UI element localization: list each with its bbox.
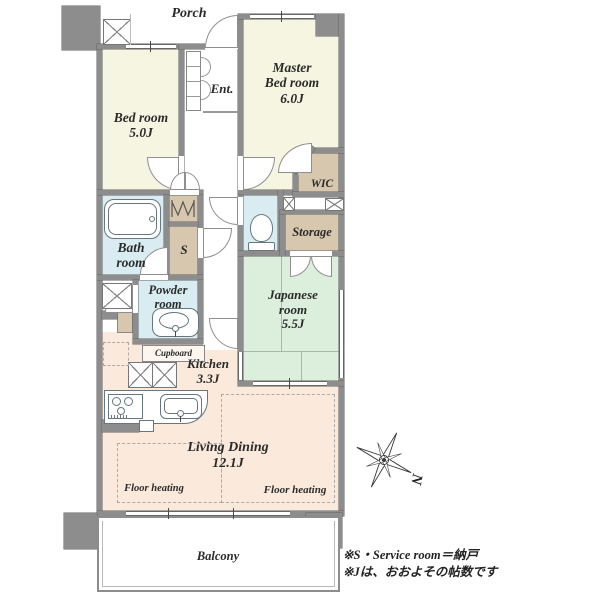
master-size: 6.0J xyxy=(250,91,334,106)
kitchen-cabinet-box xyxy=(152,362,177,388)
washing-machine-icon xyxy=(168,196,198,221)
living-dining-label: Living Dining 12.1J xyxy=(156,440,300,472)
sliding-door-japanese-bottom xyxy=(253,381,327,386)
footnote-jo-size: ※Jは、おおよその帖数です xyxy=(343,561,497,580)
japanese-room-label: Japanese room 5.5J xyxy=(250,288,336,332)
balcony-label: Balcony xyxy=(186,549,250,563)
tatami-line xyxy=(301,352,302,381)
floor-heating-right-label: Floor heating xyxy=(252,484,338,496)
laundry-door-right-arc xyxy=(185,172,200,190)
living-dining-size: 12.1J xyxy=(156,456,300,472)
bathtub-drain xyxy=(149,216,155,222)
kitchen-cabinet-box xyxy=(128,362,153,388)
doorway-powder xyxy=(133,285,138,313)
shaft-box xyxy=(102,283,132,309)
japanese-line2: room xyxy=(250,303,336,318)
window-master xyxy=(250,14,314,19)
doorway-bath xyxy=(140,275,168,280)
wash-basin-tap-stem xyxy=(175,331,176,337)
bathroom-label: Bath room xyxy=(100,240,162,271)
japanese-line1: Japanese xyxy=(250,288,336,303)
linen-shelf xyxy=(117,312,133,333)
entrance-step-line xyxy=(203,111,238,113)
stove-burner xyxy=(112,397,121,406)
kitchen-faucet-stem xyxy=(180,416,181,422)
meter-box xyxy=(103,19,131,45)
wall-corridor-left-lower xyxy=(198,280,203,344)
compass-north-label: N xyxy=(407,471,425,487)
stove-burner xyxy=(124,397,133,406)
wall-wic-top xyxy=(311,148,344,153)
wall-powder-bottom xyxy=(133,339,203,344)
japanese-size: 5.5J xyxy=(250,317,336,332)
shoe-cabinet-shelf xyxy=(187,66,200,67)
compass-rose: N xyxy=(350,424,444,500)
wall-left xyxy=(97,44,102,516)
kitchen-size: 3.3J xyxy=(176,372,240,387)
doorway-laundry xyxy=(170,190,199,195)
kitchen-name: Kitchen xyxy=(176,357,240,372)
pipe-space-box xyxy=(325,198,344,211)
powder-room-label: Powder room xyxy=(139,283,197,311)
bedroom-name: Bed room xyxy=(106,110,176,125)
window-tick xyxy=(281,11,282,22)
wall-wic-bottom xyxy=(293,192,344,197)
bedroom-size: 5.0J xyxy=(106,125,176,140)
wall-laundry-split xyxy=(169,222,198,226)
tatami-line xyxy=(243,351,339,352)
porch-label: Porch xyxy=(166,6,212,22)
counter-end-box xyxy=(139,420,154,432)
master-line2: Bed room xyxy=(250,75,334,90)
window-japanese-right xyxy=(339,290,344,378)
shoe-cabinet-shelf xyxy=(187,96,200,97)
window-tick xyxy=(233,508,234,519)
toilet-tank xyxy=(248,242,275,251)
wall-master-bottom xyxy=(238,190,298,195)
window-tick xyxy=(150,41,151,52)
service-room-label: S xyxy=(177,243,191,258)
stove-grill xyxy=(111,415,129,418)
window-tick xyxy=(289,378,290,389)
stove-burner xyxy=(117,407,125,415)
kitchen-label: Kitchen 3.3J xyxy=(176,357,240,386)
window-tick xyxy=(168,508,169,519)
wall-balcony-block-left xyxy=(64,513,97,549)
wall-entrance-top xyxy=(179,44,205,49)
wall-pillar-top-left xyxy=(62,6,100,50)
refrigerator-space xyxy=(103,342,129,366)
master-bedroom-label: Master Bed room 6.0J xyxy=(250,60,334,106)
doorway-toilet xyxy=(238,197,243,225)
wall-right xyxy=(339,14,344,516)
window-bedroom xyxy=(126,44,176,49)
floor-plan: N Porch Ent. Bed room 5.0J Master Bed ro… xyxy=(0,0,600,600)
entrance-label: Ent. xyxy=(205,82,239,97)
powder-line2: room xyxy=(139,297,197,311)
porch-edge-line xyxy=(130,14,131,45)
toilet-icon xyxy=(250,214,273,242)
shoe-cabinet-shelf xyxy=(187,81,200,82)
powder-line1: Powder xyxy=(139,283,197,297)
master-line1: Master xyxy=(250,60,334,75)
bedroom-label: Bed room 5.0J xyxy=(106,110,176,141)
window-living-balcony xyxy=(126,511,290,516)
pipe-space-box xyxy=(283,197,295,211)
bathroom-line2: room xyxy=(100,255,162,270)
living-dining-name: Living Dining xyxy=(156,440,300,456)
bathroom-line1: Bath xyxy=(100,240,162,255)
floor-heating-left-label: Floor heating xyxy=(116,483,192,495)
wic-label: WIC xyxy=(306,178,338,191)
storage-label: Storage xyxy=(285,225,339,239)
